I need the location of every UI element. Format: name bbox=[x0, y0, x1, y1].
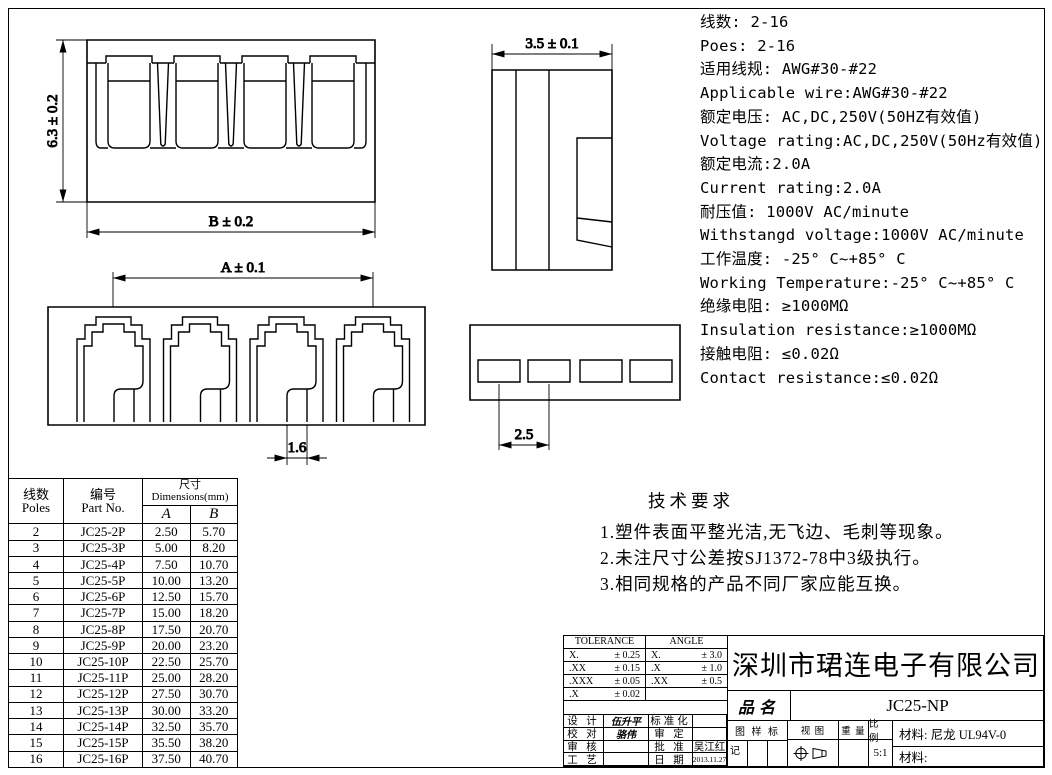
table-cell: 2.50 bbox=[143, 524, 191, 540]
svg-text:3.5 ± 0.1: 3.5 ± 0.1 bbox=[525, 36, 578, 52]
table-cell: JC25-7P bbox=[64, 605, 143, 621]
col-b-header: B bbox=[190, 505, 238, 524]
tolerance-row: .X± 0.02 bbox=[564, 688, 645, 701]
tech-requirement-item: 1.塑件表面平整光洁,无飞边、毛刺等现象。 bbox=[600, 519, 954, 545]
tech-requirement-item: 3.相同规格的产品不同厂家应能互换。 bbox=[600, 571, 954, 597]
table-row: 11JC25-11P25.0028.20 bbox=[9, 670, 238, 686]
projection-symbol-icon bbox=[793, 745, 833, 762]
table-cell: 4 bbox=[9, 556, 64, 572]
material-cell: 材料: 尼龙 UL94V-0 材料: bbox=[893, 721, 1044, 766]
spec-line: Current rating:2.0A bbox=[700, 177, 1044, 201]
table-row: 3JC25-3P5.008.20 bbox=[9, 540, 238, 556]
empty-row bbox=[564, 701, 727, 715]
product-name-label: 品名 bbox=[728, 691, 791, 720]
table-cell: 18.20 bbox=[190, 605, 238, 621]
table-cell: 30.70 bbox=[190, 686, 238, 702]
scale-cell: 比 例 5:1 bbox=[869, 721, 893, 766]
table-cell: JC25-6P bbox=[64, 589, 143, 605]
table-cell: 7 bbox=[9, 605, 64, 621]
table-cell: JC25-10P bbox=[64, 654, 143, 670]
table-cell: JC25-4P bbox=[64, 556, 143, 572]
signature-label: 批 准 bbox=[649, 741, 693, 754]
table-cell: 27.50 bbox=[143, 686, 191, 702]
spec-line: Poes: 2-16 bbox=[700, 35, 1044, 59]
tolerance-signature-section: TOLERANCE ANGLE X.± 0.25.XX± 0.15.XXX± 0… bbox=[564, 636, 728, 766]
tolerance-row: .X± 1.0 bbox=[646, 662, 727, 675]
view-label: 视 图 bbox=[788, 721, 838, 740]
table-row: 14JC25-14P32.5035.70 bbox=[9, 719, 238, 735]
specification-list: 线数: 2-16Poes: 2-16适用线规: AWG#30-#22Applic… bbox=[700, 11, 1044, 390]
table-cell: 8.20 bbox=[190, 540, 238, 556]
top-view: A ± 0.1 1.6 bbox=[48, 260, 425, 465]
svg-text:1.6: 1.6 bbox=[288, 440, 307, 456]
table-cell: 20.00 bbox=[143, 637, 191, 653]
table-row: 2JC25-2P2.505.70 bbox=[9, 524, 238, 540]
table-cell: 3 bbox=[9, 540, 64, 556]
signature-value: 伍升平 bbox=[604, 715, 649, 728]
table-row: 12JC25-12P27.5030.70 bbox=[9, 686, 238, 702]
table-cell: 15 bbox=[9, 735, 64, 751]
table-cell: JC25-16P bbox=[64, 751, 143, 767]
svg-text:2.5: 2.5 bbox=[515, 427, 534, 443]
company-product-section: 深圳市珺连电子有限公司 品名 JC25-NP 图 样 标 记 视 图 bbox=[728, 636, 1044, 766]
svg-text:6.3 ± 0.2: 6.3 ± 0.2 bbox=[45, 94, 61, 147]
table-cell: JC25-12P bbox=[64, 686, 143, 702]
signature-value bbox=[693, 728, 727, 741]
table-cell: 5.70 bbox=[190, 524, 238, 540]
angle-header: ANGLE bbox=[646, 636, 727, 648]
dim-pitch: 2.5 bbox=[499, 384, 549, 450]
signature-value bbox=[604, 753, 649, 766]
table-cell: 11 bbox=[9, 670, 64, 686]
spec-line: 适用线规: AWG#30-#22 bbox=[700, 58, 1044, 82]
spec-line: 耐压值: 1000V AC/minute bbox=[700, 201, 1044, 225]
table-cell: 5 bbox=[9, 573, 64, 589]
table-cell: 12.50 bbox=[143, 589, 191, 605]
table-cell: 16 bbox=[9, 751, 64, 767]
signature-label: 标准化 bbox=[649, 715, 693, 728]
table-cell: 2 bbox=[9, 524, 64, 540]
tolerance-header: TOLERANCE bbox=[564, 636, 646, 648]
tolerance-rows: X.± 0.25.XX± 0.15.XXX± 0.05.X± 0.02 bbox=[564, 649, 646, 701]
tolerance-row: .XX± 0.5 bbox=[646, 675, 727, 688]
dim-front-width: B ± 0.2 bbox=[87, 202, 375, 238]
signature-label: 工 艺 bbox=[564, 753, 604, 766]
table-cell: 10 bbox=[9, 654, 64, 670]
product-name: JC25-NP bbox=[791, 691, 1044, 720]
stamp-empty-cell bbox=[768, 741, 787, 766]
table-row: 7JC25-7P15.0018.20 bbox=[9, 605, 238, 621]
side-view: 3.5 ± 0.1 bbox=[492, 36, 612, 270]
table-cell: JC25-15P bbox=[64, 735, 143, 751]
engineering-drawing-sheet: 6.3 ± 0.2 B ± 0.2 3.5 ± 0.1 bbox=[0, 0, 1052, 775]
table-cell: JC25-2P bbox=[64, 524, 143, 540]
table-cell: 13 bbox=[9, 702, 64, 718]
table-cell: 10.70 bbox=[190, 556, 238, 572]
table-row: 10JC25-10P22.5025.70 bbox=[9, 654, 238, 670]
tolerance-row: X.± 3.0 bbox=[646, 649, 727, 662]
table-cell: JC25-9P bbox=[64, 637, 143, 653]
tolerance-row: X.± 0.25 bbox=[564, 649, 645, 662]
spec-line: Applicable wire:AWG#30-#22 bbox=[700, 82, 1044, 106]
spec-line: 额定电压: AC,DC,250V(50HZ有效值) bbox=[700, 106, 1044, 130]
table-cell: JC25-11P bbox=[64, 670, 143, 686]
scale-label: 比 例 bbox=[869, 721, 892, 740]
dim-front-height: 6.3 ± 0.2 bbox=[45, 40, 87, 202]
signature-grid: 设 计伍升平标准化校 对骆伟审 定审 核批 准吴江红工 艺日 期2013.11.… bbox=[564, 715, 727, 766]
signature-label: 审 定 bbox=[649, 728, 693, 741]
table-cell: 15.00 bbox=[143, 605, 191, 621]
table-cell: 35.70 bbox=[190, 719, 238, 735]
table-row: 16JC25-16P37.5040.70 bbox=[9, 751, 238, 767]
spec-line: 额定电流:2.0A bbox=[700, 153, 1044, 177]
table-cell: JC25-3P bbox=[64, 540, 143, 556]
view-cell: 视 图 bbox=[788, 721, 839, 766]
svg-text:A ± 0.1: A ± 0.1 bbox=[221, 260, 266, 276]
table-cell: 23.20 bbox=[190, 637, 238, 653]
company-name: 深圳市珺连电子有限公司 bbox=[728, 636, 1044, 691]
spec-line: Working Temperature:-25° C~+85° C bbox=[700, 272, 1044, 296]
stamp-label-2: 记 bbox=[728, 741, 748, 766]
material-value: 材料: 尼龙 UL94V-0 bbox=[893, 721, 1044, 747]
tolerance-headers: TOLERANCE ANGLE bbox=[564, 636, 727, 649]
spec-line: Withstangd voltage:1000V AC/minute bbox=[700, 224, 1044, 248]
tech-requirements-items: 1.塑件表面平整光洁,无飞边、毛刺等现象。2.未注尺寸公差按SJ1372-78中… bbox=[600, 519, 954, 597]
table-cell: 8 bbox=[9, 621, 64, 637]
signature-label: 审 核 bbox=[564, 741, 604, 754]
spec-line: Voltage rating:AC,DC,250V(50Hz有效值) bbox=[700, 130, 1044, 154]
weight-cell: 重 量 bbox=[839, 721, 869, 766]
partno-header: 编号 Part No. bbox=[64, 479, 143, 524]
table-cell: 12 bbox=[9, 686, 64, 702]
table-cell: JC25-14P bbox=[64, 719, 143, 735]
spec-line: Contact resistance:≤0.02Ω bbox=[700, 367, 1044, 391]
table-row: 6JC25-6P12.5015.70 bbox=[9, 589, 238, 605]
table-cell: JC25-13P bbox=[64, 702, 143, 718]
table-cell: JC25-5P bbox=[64, 573, 143, 589]
poles-header: 线数 Poles bbox=[9, 479, 64, 524]
spec-line: 接触电阻: ≤0.02Ω bbox=[700, 343, 1044, 367]
drawing-stamp-cell: 图 样 标 记 bbox=[728, 721, 788, 766]
col-a-header: A bbox=[143, 505, 191, 524]
tech-requirements-title: 技术要求 bbox=[648, 488, 954, 513]
table-cell: 40.70 bbox=[190, 751, 238, 767]
scale-value: 5:1 bbox=[869, 740, 892, 766]
table-cell: 33.20 bbox=[190, 702, 238, 718]
signature-value bbox=[604, 741, 649, 754]
table-row: 8JC25-8P17.5020.70 bbox=[9, 621, 238, 637]
angle-rows: X.± 3.0.X± 1.0.XX± 0.5 bbox=[646, 649, 727, 701]
signature-label: 校 对 bbox=[564, 728, 604, 741]
dim-top-span: A ± 0.1 bbox=[113, 260, 373, 307]
table-cell: JC25-8P bbox=[64, 621, 143, 637]
table-cell: 9 bbox=[9, 637, 64, 653]
table-cell: 22.50 bbox=[143, 654, 191, 670]
dim-slot-width: 1.6 bbox=[267, 425, 327, 465]
table-row: 15JC25-15P35.5038.20 bbox=[9, 735, 238, 751]
table-cell: 13.20 bbox=[190, 573, 238, 589]
tolerance-row: .XX± 0.15 bbox=[564, 662, 645, 675]
bottom-view: 2.5 bbox=[470, 325, 680, 450]
signature-value: 骆伟 bbox=[604, 728, 649, 741]
table-row: 13JC25-13P30.0033.20 bbox=[9, 702, 238, 718]
signature-label: 日 期 bbox=[649, 753, 693, 766]
dim-side-width: 3.5 ± 0.1 bbox=[492, 36, 612, 70]
table-cell: 10.00 bbox=[143, 573, 191, 589]
signature-value: 吴江红 bbox=[693, 741, 727, 754]
table-cell: 25.00 bbox=[143, 670, 191, 686]
spec-line: 绝缘电阻: ≥1000MΩ bbox=[700, 295, 1044, 319]
signature-value: 2013.11.27 bbox=[693, 753, 727, 766]
spec-line: 线数: 2-16 bbox=[700, 11, 1044, 35]
table-cell: 20.70 bbox=[190, 621, 238, 637]
table-cell: 14 bbox=[9, 719, 64, 735]
stamp-empty-cell bbox=[748, 741, 768, 766]
technical-requirements: 技术要求 1.塑件表面平整光洁,无飞边、毛刺等现象。2.未注尺寸公差按SJ137… bbox=[600, 488, 954, 597]
tech-requirement-item: 2.未注尺寸公差按SJ1372-78中3级执行。 bbox=[600, 545, 954, 571]
title-block: TOLERANCE ANGLE X.± 0.25.XX± 0.15.XXX± 0… bbox=[563, 635, 1044, 767]
table-row: 9JC25-9P20.0023.20 bbox=[9, 637, 238, 653]
table-cell: 30.00 bbox=[143, 702, 191, 718]
stamp-label: 图 样 标 bbox=[728, 721, 787, 740]
weight-value bbox=[839, 740, 868, 766]
table-cell: 37.50 bbox=[143, 751, 191, 767]
svg-text:B ± 0.2: B ± 0.2 bbox=[209, 214, 254, 230]
table-cell: 5.00 bbox=[143, 540, 191, 556]
signature-label: 设 计 bbox=[564, 715, 604, 728]
spec-line: 工作温度: -25° C~+85° C bbox=[700, 248, 1044, 272]
table-cell: 28.20 bbox=[190, 670, 238, 686]
table-cell: 25.70 bbox=[190, 654, 238, 670]
front-view: 6.3 ± 0.2 B ± 0.2 bbox=[45, 40, 375, 238]
table-cell: 38.20 bbox=[190, 735, 238, 751]
dimensions-header: 尺寸Dimensions(mm) bbox=[143, 479, 238, 506]
signature-value bbox=[693, 715, 727, 728]
table-cell: 32.50 bbox=[143, 719, 191, 735]
weight-label: 重 量 bbox=[839, 721, 868, 740]
material-value-2: 材料: bbox=[893, 747, 1044, 766]
parts-table: 线数 Poles 编号 Part No. 尺寸Dimensions(mm) A … bbox=[8, 478, 238, 768]
table-row: 5JC25-5P10.0013.20 bbox=[9, 573, 238, 589]
table-cell: 15.70 bbox=[190, 589, 238, 605]
table-cell: 35.50 bbox=[143, 735, 191, 751]
table-cell: 6 bbox=[9, 589, 64, 605]
table-row: 4JC25-4P7.5010.70 bbox=[9, 556, 238, 572]
tolerance-row: .XXX± 0.05 bbox=[564, 675, 645, 688]
table-cell: 7.50 bbox=[143, 556, 191, 572]
tolerance-row bbox=[646, 688, 727, 701]
table-cell: 17.50 bbox=[143, 621, 191, 637]
spec-line: Insulation resistance:≥1000MΩ bbox=[700, 319, 1044, 343]
parts-header-row: 线数 Poles 编号 Part No. 尺寸Dimensions(mm) bbox=[9, 479, 238, 506]
